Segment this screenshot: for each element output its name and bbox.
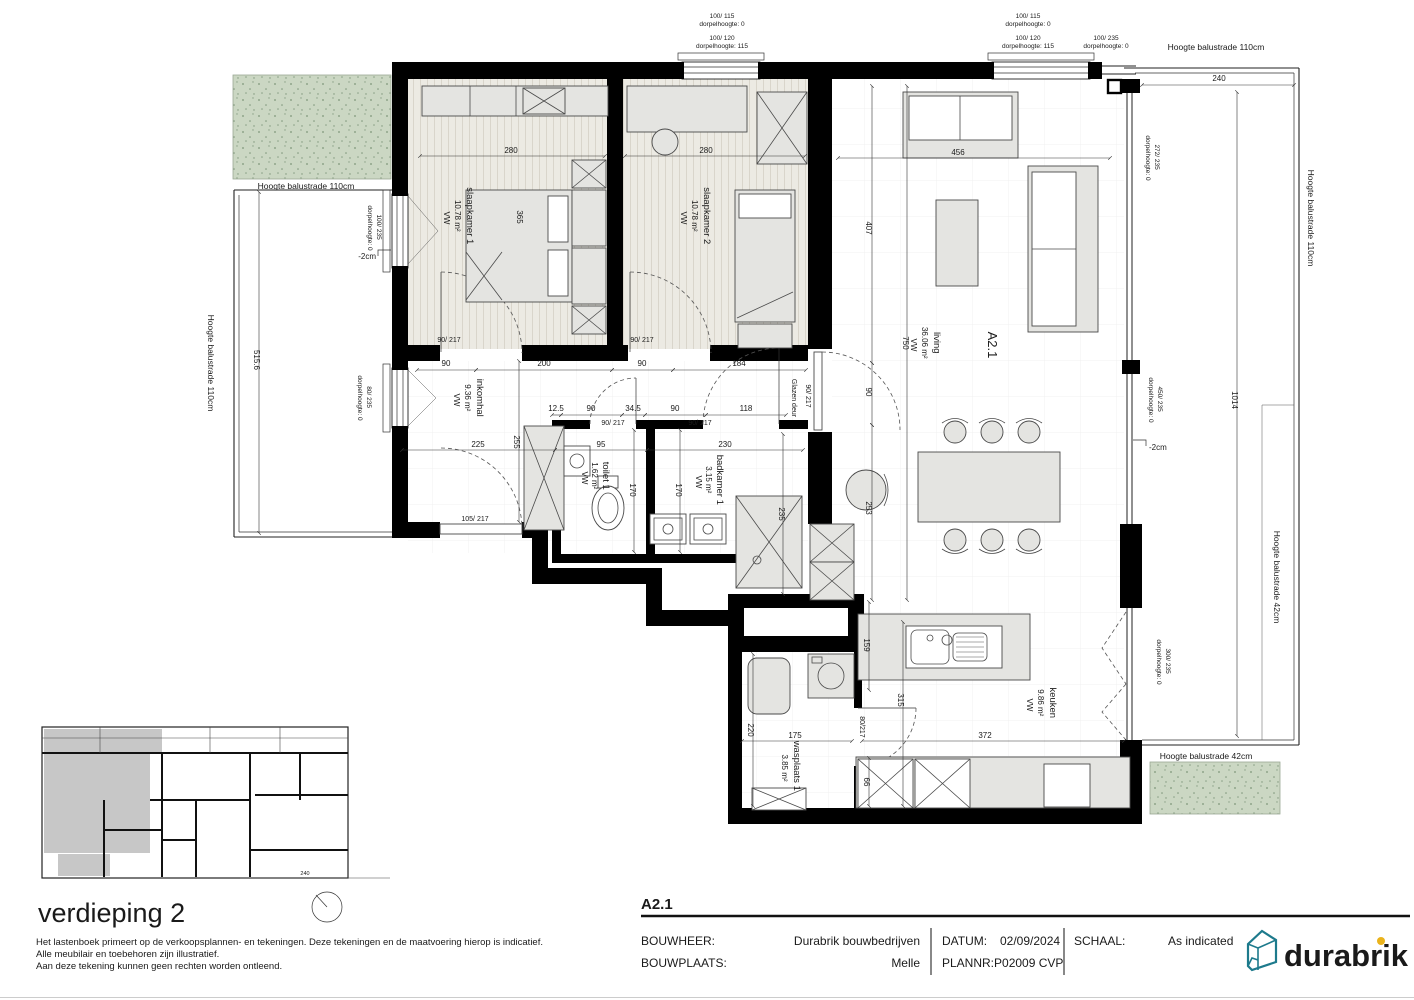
title-block: A2.1 BOUWHEER: Durabrik bouwbedrijven BO… (641, 896, 1410, 975)
dim-bad-width: 230 (718, 440, 732, 449)
left-window2-label: 80/ 235 dorpelhoogte: 0 (356, 375, 372, 421)
schaal-value: As indicated (1168, 934, 1233, 948)
dim-counter: 66 (862, 778, 871, 787)
left-window2-size: 80/ 235 (365, 386, 372, 408)
dim-terrace-height: 1014 (1230, 391, 1239, 409)
dim-hall-depth: 255 (512, 435, 521, 449)
top-window1-size1: 100/ 115 (710, 13, 735, 20)
door-bd1: 90/ 217 (437, 337, 460, 344)
overview-plan: 240 verdieping 2 Het lastenboek primeert… (36, 727, 543, 972)
balustrade-top-right: Hoogte balustrade 110cm (1168, 42, 1265, 52)
durabrik-logo-text: durabrik (1284, 938, 1409, 973)
right-window2-sill: dorpelhoogte: 0 (1147, 377, 1154, 423)
dim-terrace-width: 240 (1212, 74, 1226, 83)
dim-sub-1: 12.5 (548, 404, 564, 413)
bouwheer-label: BOUWHEER: (641, 934, 715, 948)
top-window2-size1: 100/ 115 (1016, 13, 1041, 20)
label-glazen-deur: Glazen deur (790, 379, 797, 418)
dim-shower: 235 (777, 507, 786, 521)
floor-plan-drawing: 100/ 115 dorpelhoogte: 0 100/ 120 dorpel… (0, 0, 1414, 1000)
disclaimer-line-3: Aan deze tekening kunnen geen rechten wo… (36, 961, 282, 972)
overview-shaded-1 (44, 729, 162, 752)
bouwplaats-value: Melle (891, 956, 920, 970)
dim-island: 159 (862, 638, 871, 652)
dim-sofa: 456 (951, 148, 965, 157)
top-window2-sill2: dorpelhoogte: 115 (1002, 43, 1054, 50)
left-window2-sill: dorpelhoogte: 0 (356, 375, 363, 421)
title-code: A2.1 (641, 896, 673, 913)
balustrade-left-top: Hoogte balustrade 110cm (258, 181, 355, 191)
dim-bd1-width: 280 (504, 146, 518, 155)
dim-bad-depth: 170 (674, 483, 683, 497)
door-toilet: 90/ 217 (601, 420, 624, 427)
dim-hall-2: 200 (537, 359, 551, 368)
balustrade-left-side: Hoogte balustrade 110cm (206, 315, 216, 412)
dim-living-depth: 407 (864, 221, 873, 235)
top-window3-sill: dorpelhoogte: 0 (1083, 43, 1129, 50)
dim-kitchen-depth: 315 (896, 693, 905, 707)
disclaimer-line-1: Het lastenboek primeert op de verkoopspl… (36, 937, 543, 948)
left-window1-size: 100/ 235 (375, 214, 382, 240)
right-window1-size: 272/ 235 (1153, 144, 1160, 170)
glazen-deur-size: 90/ 217 (804, 384, 811, 407)
dim-left-terrace: 515.6 (252, 350, 261, 371)
dim-wasplaats-width: 175 (788, 731, 802, 740)
entry-niche (744, 608, 848, 636)
top-window-2 (988, 53, 1136, 79)
dim-hall-4: 184 (732, 359, 746, 368)
kitchen-tall-units (810, 524, 854, 600)
sofa-right (1028, 166, 1098, 332)
durabrik-logo-dot (1377, 937, 1385, 945)
north-indicator (312, 892, 342, 922)
right-window3-size: 300/ 235 (1164, 648, 1171, 674)
dim-sub-4: 90 (671, 404, 680, 413)
door-bd2: 90/ 217 (630, 337, 653, 344)
dim-hall-1: 90 (442, 359, 451, 368)
top-window2-size2: 100/ 120 (1015, 35, 1041, 42)
dim-toilet-depth: 170 (628, 483, 637, 497)
disclaimer-line-2: Alle meubilair en toebehoren zijn illust… (36, 949, 219, 960)
left-window1-sill: dorpelhoogte: 0 (366, 205, 373, 251)
dim-living-low: 253 (864, 501, 873, 515)
balustrade-right-side: Hoogte balustrade 110cm (1306, 170, 1316, 267)
green-patch-bottom-right (1150, 762, 1280, 814)
top-window1-sill1: dorpelhoogte: 0 (699, 21, 745, 28)
coffee-table (936, 200, 978, 286)
top-window1-size2: 100/ 120 (709, 35, 735, 42)
dim-kitchen-width: 372 (978, 731, 992, 740)
door-badkamer: 90/ 217 (688, 420, 711, 427)
dim-hall-3: 90 (638, 359, 647, 368)
overview-title: verdieping 2 (38, 898, 185, 928)
right-window1-label: 272/ 235 dorpelhoogte: 0 (1144, 135, 1160, 181)
right-window2-size: 450/ 235 (1156, 386, 1163, 412)
dim-sub-5: 118 (740, 404, 753, 413)
right-window3-sill: dorpelhoogte: 0 (1155, 639, 1162, 685)
bouwplaats-label: BOUWPLAATS: (641, 956, 727, 970)
left-window1-label: 100/ 235 dorpelhoogte: 0 (366, 205, 382, 251)
balustrade-bottom: Hoogte balustrade 42cm (1160, 751, 1253, 761)
plannr-value: PLANNR:P02009 CVP (942, 956, 1063, 970)
kitchen-counter (856, 757, 1130, 808)
dim-sub-3: 34.5 (625, 404, 641, 413)
column-marker (1108, 80, 1121, 93)
right-window1-sill: dorpelhoogte: 0 (1144, 135, 1151, 181)
right-window3-label: 300/ 235 dorpelhoogte: 0 (1155, 639, 1171, 685)
schaal-label: SCHAAL: (1074, 934, 1125, 948)
door-wasplaats: 80/217 (858, 716, 865, 738)
dim-bed1: 365 (515, 210, 524, 224)
door-entry: 105/ 217 (461, 516, 488, 523)
dim-bd2-width: 280 (699, 146, 713, 155)
overview-shaded-3 (104, 800, 150, 853)
right-window2-label: 450/ 235 dorpelhoogte: 0 (1147, 377, 1163, 423)
balustrade-right-lower: Hoogte balustrade 42cm (1272, 531, 1282, 624)
datum-label: DATUM: (942, 934, 987, 948)
top-window2-sill1: dorpelhoogte: 0 (1005, 21, 1051, 28)
floor-plan-sheet: 100/ 115 dorpelhoogte: 0 100/ 120 dorpel… (0, 0, 1414, 1000)
durabrik-house-icon (1248, 931, 1276, 970)
level-right: -2cm (1149, 443, 1167, 452)
top-window3-size: 100/ 235 (1093, 35, 1119, 42)
label-unit-a21: A2.1 (985, 332, 1000, 359)
top-window-1 (678, 53, 764, 79)
kitchen-island (858, 614, 1030, 680)
dim-living-height: 750 (901, 336, 910, 350)
overview-shaded-4 (58, 854, 110, 876)
dim-living-mid: 90 (864, 388, 873, 397)
dim-wasplaats-depth: 220 (746, 723, 755, 737)
top-window1-sill2: dorpelhoogte: 115 (696, 43, 748, 50)
dim-sub-2: 90 (587, 404, 596, 413)
level-left: -2cm (358, 252, 376, 261)
left-terrace (233, 75, 392, 537)
bouwheer-value: Durabrik bouwbedrijven (794, 934, 920, 948)
durabrik-logo: durabrik (1248, 931, 1409, 973)
green-patch-top-left (233, 75, 391, 179)
datum-value: 02/09/2024 (1000, 934, 1060, 948)
dim-hall-width: 225 (471, 440, 485, 449)
dim-toilet-width: 95 (597, 440, 606, 449)
overview-dim: 240 (300, 871, 309, 877)
